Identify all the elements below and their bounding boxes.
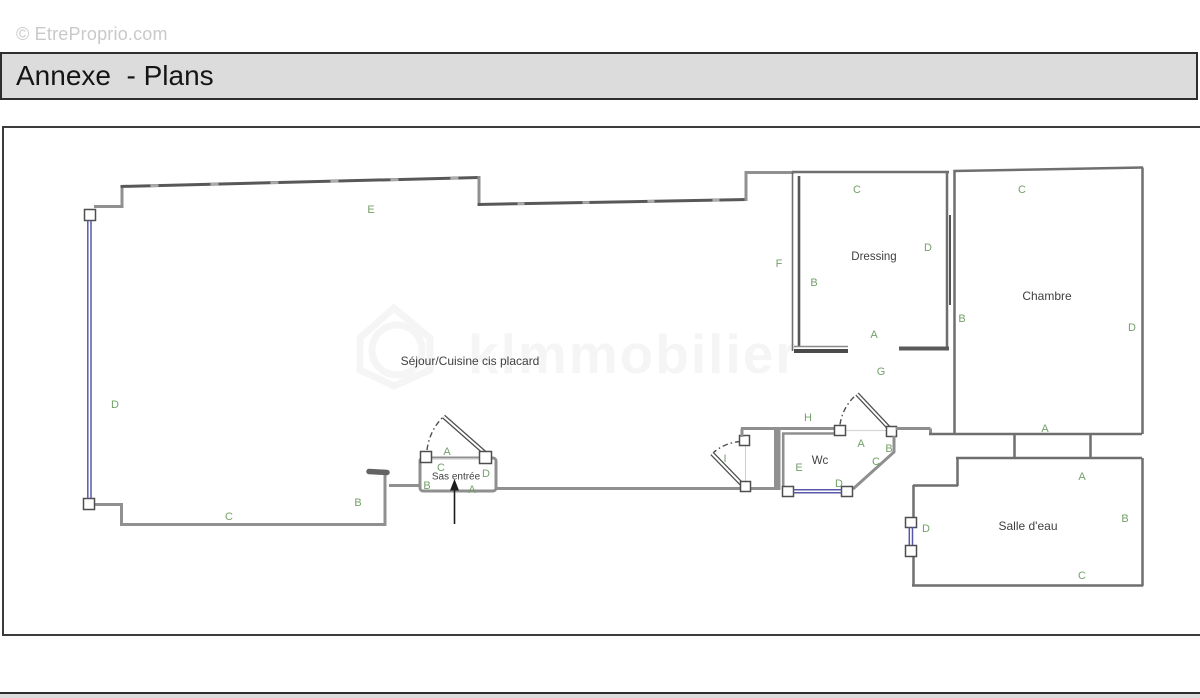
svg-text:Séjour/Cuisine cis placard: Séjour/Cuisine cis placard [401, 354, 540, 368]
svg-text:F: F [776, 258, 783, 270]
svg-text:B: B [1121, 513, 1128, 525]
svg-text:C: C [853, 184, 861, 196]
svg-text:I: I [723, 453, 726, 465]
svg-text:A: A [857, 438, 865, 450]
svg-text:C: C [872, 456, 880, 468]
svg-text:A: A [443, 446, 451, 458]
svg-text:Dressing: Dressing [851, 251, 896, 263]
svg-text:D: D [922, 523, 930, 535]
svg-text:B: B [354, 497, 361, 509]
svg-text:B: B [885, 443, 892, 455]
svg-text:A: A [1078, 471, 1086, 483]
svg-text:D: D [1128, 322, 1136, 334]
svg-text:E: E [367, 204, 374, 216]
svg-text:C: C [1078, 570, 1086, 582]
svg-text:Wc: Wc [812, 455, 829, 467]
svg-text:E: E [795, 462, 802, 474]
svg-text:C: C [1018, 184, 1026, 196]
svg-text:B: B [810, 277, 817, 289]
svg-text:D: D [924, 242, 932, 254]
svg-text:A: A [870, 329, 878, 341]
svg-text:D: D [835, 478, 843, 490]
svg-text:G: G [877, 366, 886, 378]
svg-text:Chambre: Chambre [1022, 289, 1072, 303]
svg-text:H: H [804, 412, 812, 424]
svg-text:B: B [423, 480, 430, 492]
svg-text:A: A [1041, 423, 1049, 435]
svg-text:C: C [437, 462, 445, 474]
svg-text:B: B [958, 313, 965, 325]
svg-text:Salle d'eau: Salle d'eau [998, 519, 1057, 533]
svg-text:D: D [482, 468, 490, 480]
svg-text:D: D [111, 399, 119, 411]
svg-text:A: A [468, 484, 476, 496]
svg-text:C: C [225, 511, 233, 523]
